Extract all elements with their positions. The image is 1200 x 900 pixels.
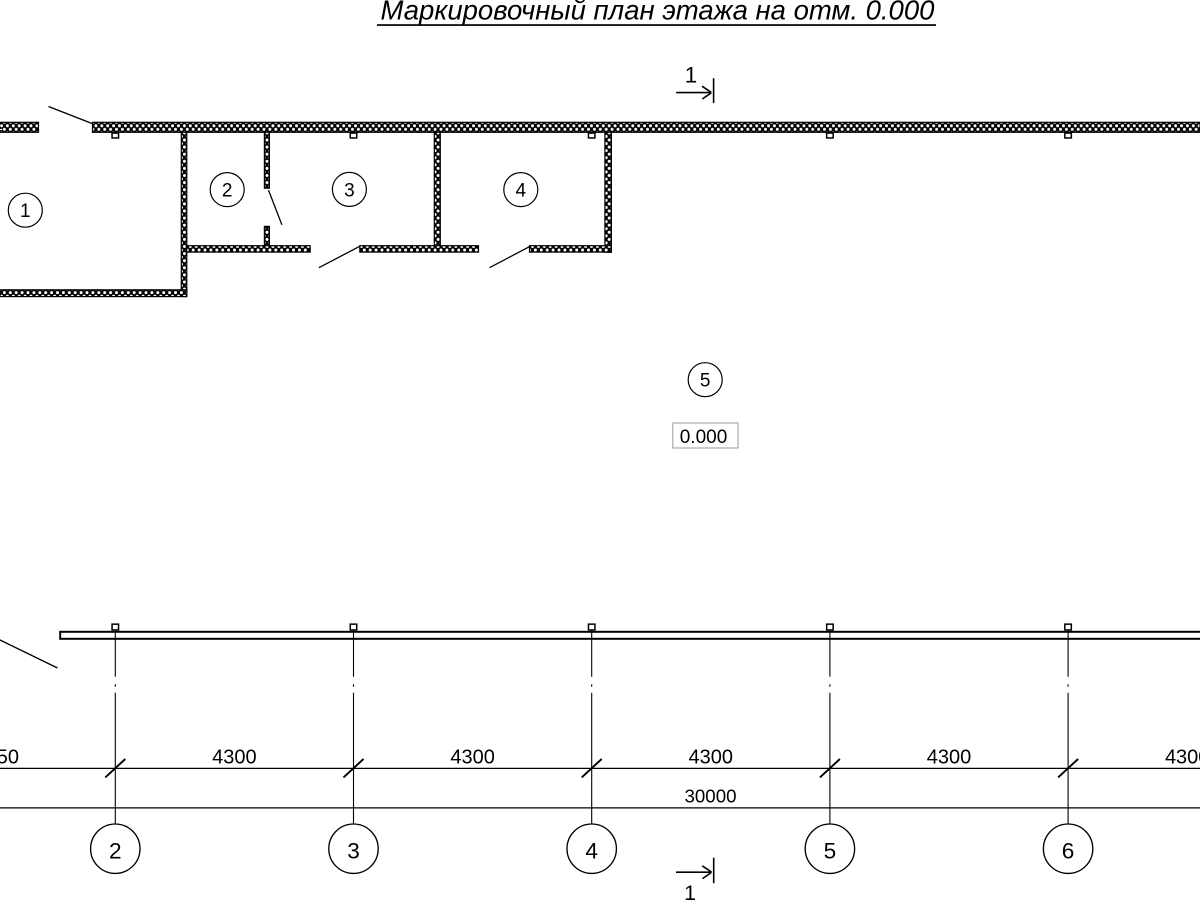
svg-text:30000: 30000 bbox=[685, 786, 737, 807]
svg-text:1: 1 bbox=[20, 201, 31, 222]
svg-text:5: 5 bbox=[700, 371, 711, 392]
svg-text:2: 2 bbox=[109, 839, 122, 864]
svg-text:3: 3 bbox=[344, 180, 355, 201]
svg-text:2: 2 bbox=[222, 181, 233, 202]
svg-text:1: 1 bbox=[684, 881, 696, 900]
svg-text:4: 4 bbox=[585, 839, 598, 864]
svg-text:50: 50 bbox=[0, 746, 19, 768]
svg-text:3: 3 bbox=[347, 839, 360, 864]
svg-text:4300: 4300 bbox=[1165, 746, 1200, 768]
svg-text:5: 5 bbox=[824, 839, 837, 864]
svg-text:6: 6 bbox=[1062, 839, 1075, 864]
svg-text:1: 1 bbox=[685, 62, 698, 87]
svg-text:4300: 4300 bbox=[212, 746, 257, 768]
svg-text:4300: 4300 bbox=[689, 746, 734, 768]
svg-text:0.000: 0.000 bbox=[680, 427, 728, 448]
svg-text:4: 4 bbox=[516, 181, 527, 202]
svg-text:4300: 4300 bbox=[450, 746, 495, 768]
svg-text:Маркировочный план этажа на от: Маркировочный план этажа на отм. 0.000 bbox=[381, 0, 936, 26]
svg-text:4300: 4300 bbox=[927, 746, 972, 768]
